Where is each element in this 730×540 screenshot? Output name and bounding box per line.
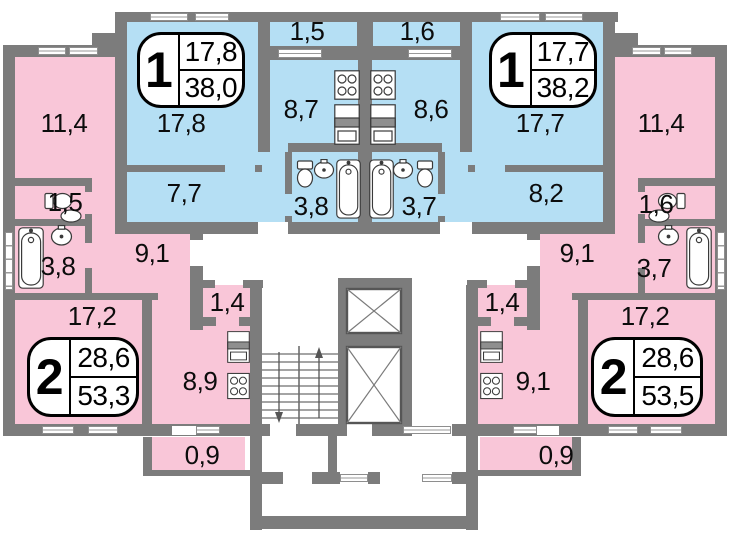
room-area-label: 3,8 (294, 193, 329, 219)
wall (85, 214, 92, 243)
wall (262, 472, 283, 484)
window (196, 426, 220, 434)
wall (142, 300, 152, 424)
room-area-label: 17,2 (68, 303, 117, 329)
window (69, 47, 98, 55)
wall (115, 222, 258, 234)
window (608, 426, 638, 434)
window (632, 47, 661, 55)
apartment-badge: 2 28,6 53,5 (591, 337, 703, 417)
sink-icon (656, 225, 681, 246)
balcony-door-opening (172, 426, 196, 435)
wall (452, 472, 466, 484)
wall (466, 143, 472, 152)
window (340, 474, 368, 482)
apartment-rooms-count: 2 (594, 340, 635, 414)
room-area-label: 0,9 (539, 442, 574, 468)
stove-icon (227, 371, 250, 401)
apartment-living-area: 28,6 (71, 340, 136, 378)
elevator-shaft-icon (345, 287, 403, 335)
wall (255, 165, 262, 172)
room-area-label: 8,6 (414, 96, 449, 122)
apartment-rooms-count: 2 (30, 340, 71, 414)
window (38, 47, 66, 55)
room-area-label: 11,4 (638, 110, 685, 136)
window (150, 13, 188, 21)
apartment-badge: 1 17,7 38,2 (489, 32, 597, 108)
apartment-badge: 1 17,8 38,0 (137, 32, 245, 108)
window (717, 232, 725, 290)
wall (638, 178, 727, 186)
apartment-living-area: 17,7 (532, 35, 594, 71)
wall (514, 317, 527, 326)
apartment-living-area: 28,6 (635, 340, 700, 378)
wall (472, 222, 615, 234)
wall (468, 165, 475, 172)
wall (578, 300, 588, 424)
wall (357, 12, 373, 56)
room-area-label: 17,8 (157, 110, 206, 136)
sink-icon (313, 159, 335, 179)
wall (3, 424, 152, 436)
wall (438, 152, 445, 194)
room-area-label: 17,7 (516, 110, 565, 136)
room-area-label: 9,1 (560, 240, 595, 266)
wall (85, 268, 92, 293)
window (422, 474, 452, 482)
apartment-badge: 2 28,6 53,3 (27, 337, 139, 417)
window (403, 426, 451, 434)
room-area-label: 11,4 (41, 110, 88, 136)
kitchen-counter-icon (227, 331, 250, 363)
wall (3, 178, 92, 186)
wall (250, 516, 478, 529)
wall (190, 266, 203, 330)
wall (466, 285, 478, 530)
bathtub-icon (336, 158, 361, 220)
wall (285, 216, 292, 222)
wall (372, 424, 403, 436)
window (195, 13, 229, 21)
wall (258, 143, 264, 152)
kitchen-counter-icon (370, 104, 396, 145)
balcony-wall (143, 470, 250, 476)
room-area-label: 1,4 (485, 289, 520, 315)
wall (505, 165, 603, 172)
apartment-total-area: 53,3 (71, 378, 136, 414)
room-area-label: 17,2 (621, 303, 670, 329)
window (545, 13, 583, 21)
wall (203, 317, 216, 326)
room-area-label: 1,6 (639, 191, 674, 217)
wall (368, 472, 380, 484)
window (88, 426, 118, 434)
wall (527, 234, 540, 240)
wall (3, 293, 158, 300)
room-area-label: 0,9 (185, 442, 220, 468)
wall (127, 165, 225, 172)
room-area-label: 7,7 (167, 180, 202, 206)
toilet-icon (295, 160, 315, 188)
wall (285, 152, 292, 194)
room-area-label: 9,1 (135, 240, 170, 266)
wall (312, 472, 340, 484)
kitchen-counter-icon (480, 331, 503, 363)
stove-icon (370, 70, 396, 100)
room-area-label: 8,9 (183, 368, 218, 394)
room-area-label: 9,1 (516, 368, 551, 394)
wall (460, 22, 472, 152)
room-area-label: 1,5 (290, 18, 325, 44)
wall (85, 186, 92, 192)
sink-icon (392, 159, 414, 179)
wall (250, 285, 262, 530)
wall (190, 234, 203, 240)
window (42, 426, 74, 434)
apartment-total-area: 38,0 (180, 71, 242, 105)
bathtub-icon (369, 158, 394, 220)
room-area-label: 8,7 (284, 96, 319, 122)
apartment-rooms-count: 1 (492, 35, 532, 105)
window (500, 13, 540, 21)
wall (527, 266, 540, 330)
room-area-label: 1,4 (210, 289, 245, 315)
wall (328, 436, 337, 472)
floor-plan: 17,8 8,7 7,7 3,8 1,5 17,7 8,6 8,2 3,7 1,… (0, 0, 730, 540)
window (664, 47, 692, 55)
room-area-label: 1,5 (48, 189, 83, 215)
apartment-living-area: 17,8 (180, 35, 242, 71)
balcony-window (278, 49, 322, 58)
room-area-label: 3,8 (41, 253, 76, 279)
room-area-label: 8,2 (529, 180, 564, 206)
room-area-label: 3,7 (402, 193, 437, 219)
wall (572, 293, 727, 300)
apartment-total-area: 38,2 (532, 71, 594, 105)
wall (402, 278, 412, 436)
apartment-rooms-count: 1 (140, 35, 180, 105)
toilet-icon (415, 160, 435, 188)
apartment-total-area: 53,5 (635, 378, 700, 414)
stove-icon (480, 371, 503, 401)
staircase-icon (262, 346, 338, 424)
balcony-wall (478, 470, 581, 476)
sink-icon (49, 225, 74, 246)
window (513, 426, 537, 434)
wall (478, 317, 491, 326)
balcony-wall (143, 437, 152, 470)
balcony-door-opening (537, 426, 559, 435)
room-area-label: 1,6 (400, 18, 435, 44)
wall (296, 424, 340, 436)
wall (438, 216, 445, 222)
elevator-shaft-icon (345, 345, 403, 425)
balcony-window (408, 49, 452, 58)
kitchen-counter-icon (334, 104, 360, 145)
window (5, 232, 13, 290)
bathtub-icon (686, 227, 712, 289)
wall (258, 22, 270, 152)
window (650, 426, 682, 434)
stove-icon (334, 70, 360, 100)
room-area-label: 3,7 (637, 255, 672, 281)
